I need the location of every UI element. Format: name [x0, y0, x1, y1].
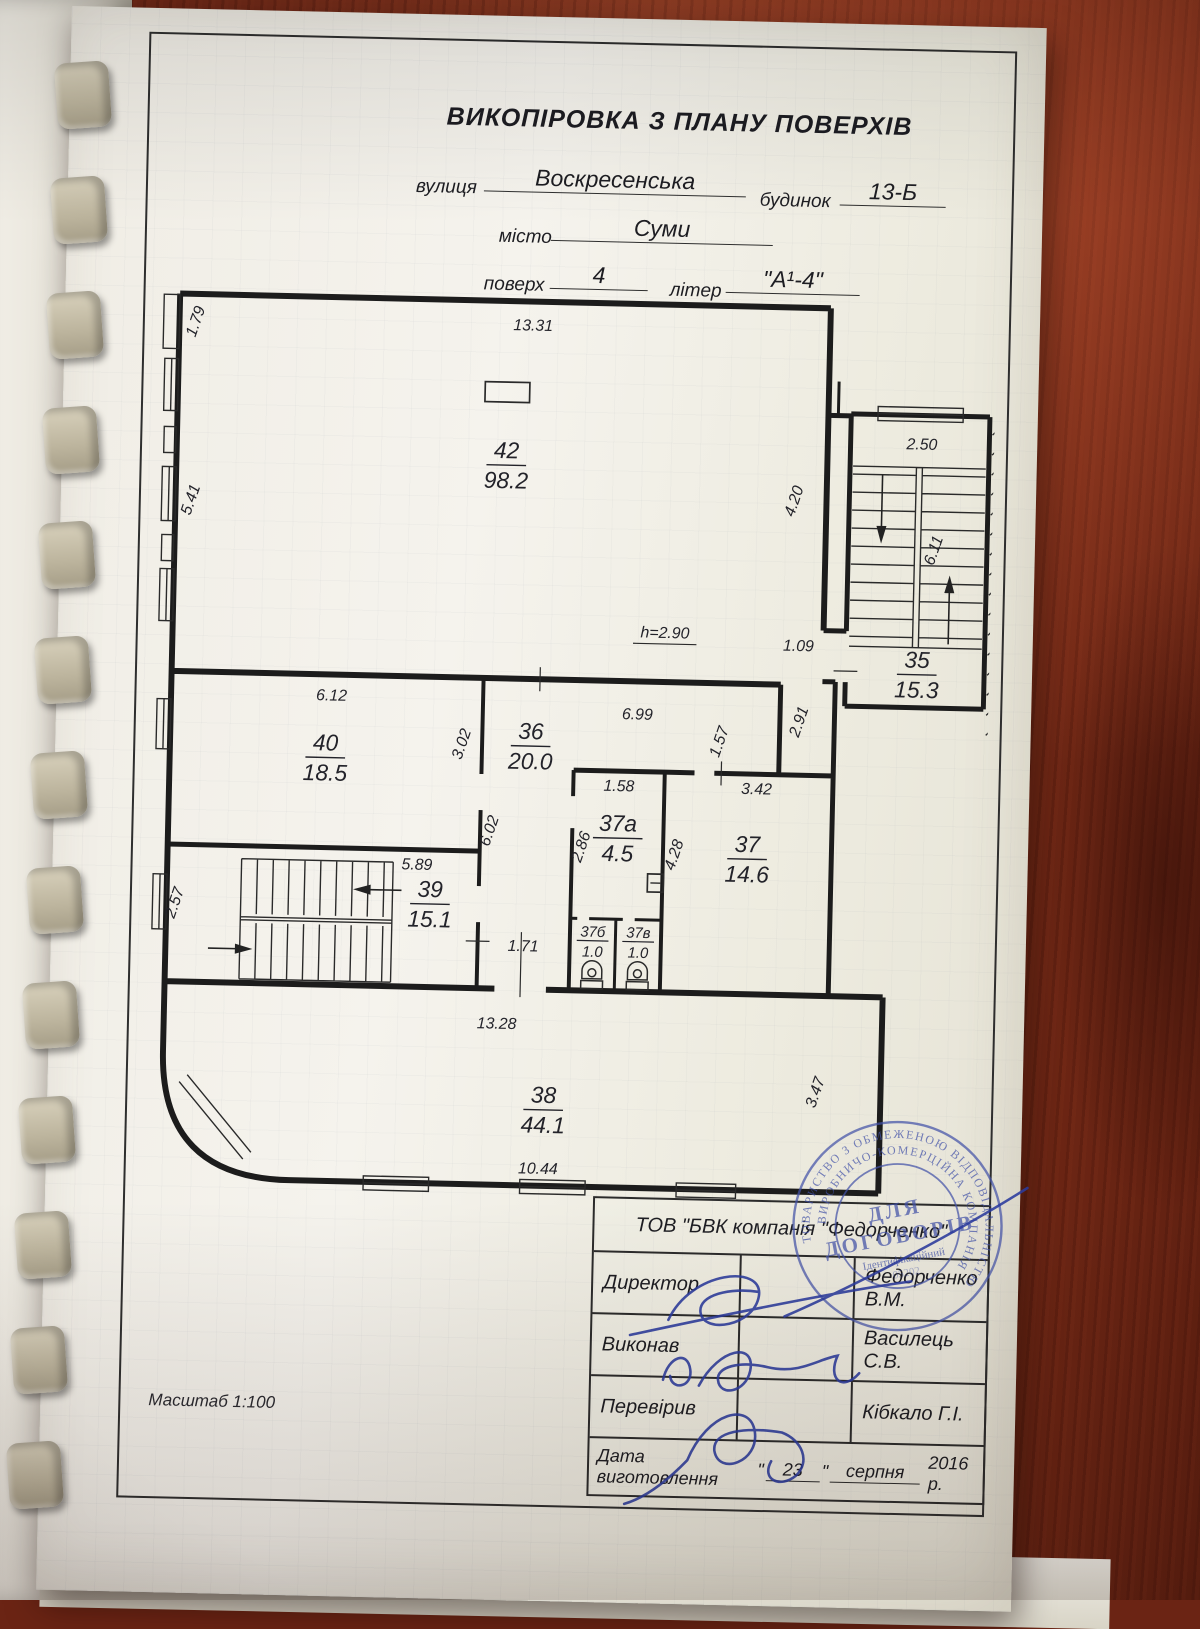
room-37v-number: 37в [626, 924, 651, 942]
dim-5-89: 5.89 [401, 856, 432, 874]
binding-comb [30, 750, 88, 820]
dim-1-57: 1.57 [707, 723, 734, 759]
room-36-area: 20.0 [507, 747, 553, 774]
binding-comb [46, 290, 104, 360]
stair-treads [239, 452, 986, 995]
dim-13-28: 13.28 [477, 1015, 517, 1033]
binding-comb [22, 980, 80, 1050]
pen-signatures [568, 1126, 1037, 1516]
room-37-number: 37 [734, 831, 761, 858]
dim-height-note: h=2.90 [640, 624, 689, 642]
city-value: Суми [551, 213, 774, 246]
dim-5-41: 5.41 [178, 482, 204, 517]
dim-13-31: 13.31 [513, 317, 553, 335]
binding-comb [18, 1095, 76, 1165]
room-37v-area: 1.0 [627, 944, 649, 962]
room-37a-number: 37а [599, 810, 638, 837]
dim-4-20: 4.20 [781, 484, 807, 519]
street-value: Воскресенська [484, 163, 747, 197]
room-39-area: 15.1 [407, 905, 452, 932]
binding-comb [26, 865, 84, 935]
binding-comb [14, 1210, 72, 1280]
binding-comb [10, 1325, 68, 1395]
dim-3-47: 3.47 [803, 1074, 830, 1110]
dim-4-28: 4.28 [661, 837, 687, 872]
director-signature [630, 1274, 911, 1341]
room-37b-area: 1.0 [582, 943, 604, 961]
dim-1-71: 1.71 [507, 938, 538, 956]
dim-2-50: 2.50 [905, 436, 937, 454]
room-38-number: 38 [531, 1081, 557, 1108]
dim-3-02: 3.02 [449, 726, 475, 761]
dim-10-44: 10.44 [518, 1160, 558, 1178]
dim-3-42: 3.42 [741, 781, 772, 799]
room-37a-area: 4.5 [601, 840, 634, 867]
dim-1-58: 1.58 [603, 778, 634, 796]
scale-label: Масштаб 1:100 [148, 1390, 275, 1413]
executor-signature [663, 1351, 860, 1394]
city-label: місто [499, 226, 552, 249]
pen-stroke-long [784, 1183, 1027, 1322]
floor-plan: 42 98.2 35 15.3 40 18.5 36 20.0 37а 4.5 … [124, 278, 997, 1243]
binding-comb [54, 60, 112, 130]
dim-1-09: 1.09 [783, 638, 814, 656]
room-38-area: 44.1 [520, 1111, 565, 1138]
binding-comb [34, 635, 92, 705]
room-42-number: 42 [494, 437, 520, 464]
room-36-number: 36 [518, 718, 544, 745]
document-sheet: ВИКОПІРОВКА З ПЛАНУ ПОВЕРХІВ вулиця Воск… [36, 6, 1047, 1612]
binding-comb [42, 405, 100, 475]
binding-comb [50, 175, 108, 245]
dim-6-11: 6.11 [921, 534, 947, 568]
checker-signature [624, 1412, 804, 1508]
room-37-area: 14.6 [724, 861, 769, 888]
room-40-area: 18.5 [302, 759, 347, 786]
building-value: 13-Б [840, 177, 947, 207]
building-label: будинок [760, 190, 831, 214]
dim-6-99: 6.99 [622, 706, 653, 724]
room-42-area: 98.2 [483, 467, 528, 494]
dim-1-79: 1.79 [183, 304, 209, 339]
page-title: ВИКОПІРОВКА З ПЛАНУ ПОВЕРХІВ [399, 101, 960, 143]
windows [144, 294, 965, 1203]
room-35-number: 35 [904, 646, 930, 673]
binding-comb [6, 1440, 64, 1510]
dim-2-91: 2.91 [786, 704, 812, 740]
room-37b-number: 37б [580, 923, 606, 941]
street-label: вулиця [416, 176, 477, 199]
room-40-number: 40 [313, 729, 339, 756]
room-39-number: 39 [417, 876, 443, 903]
binding-comb [38, 520, 96, 590]
room-35-area: 15.3 [894, 676, 939, 703]
dim-6-12: 6.12 [316, 687, 347, 705]
